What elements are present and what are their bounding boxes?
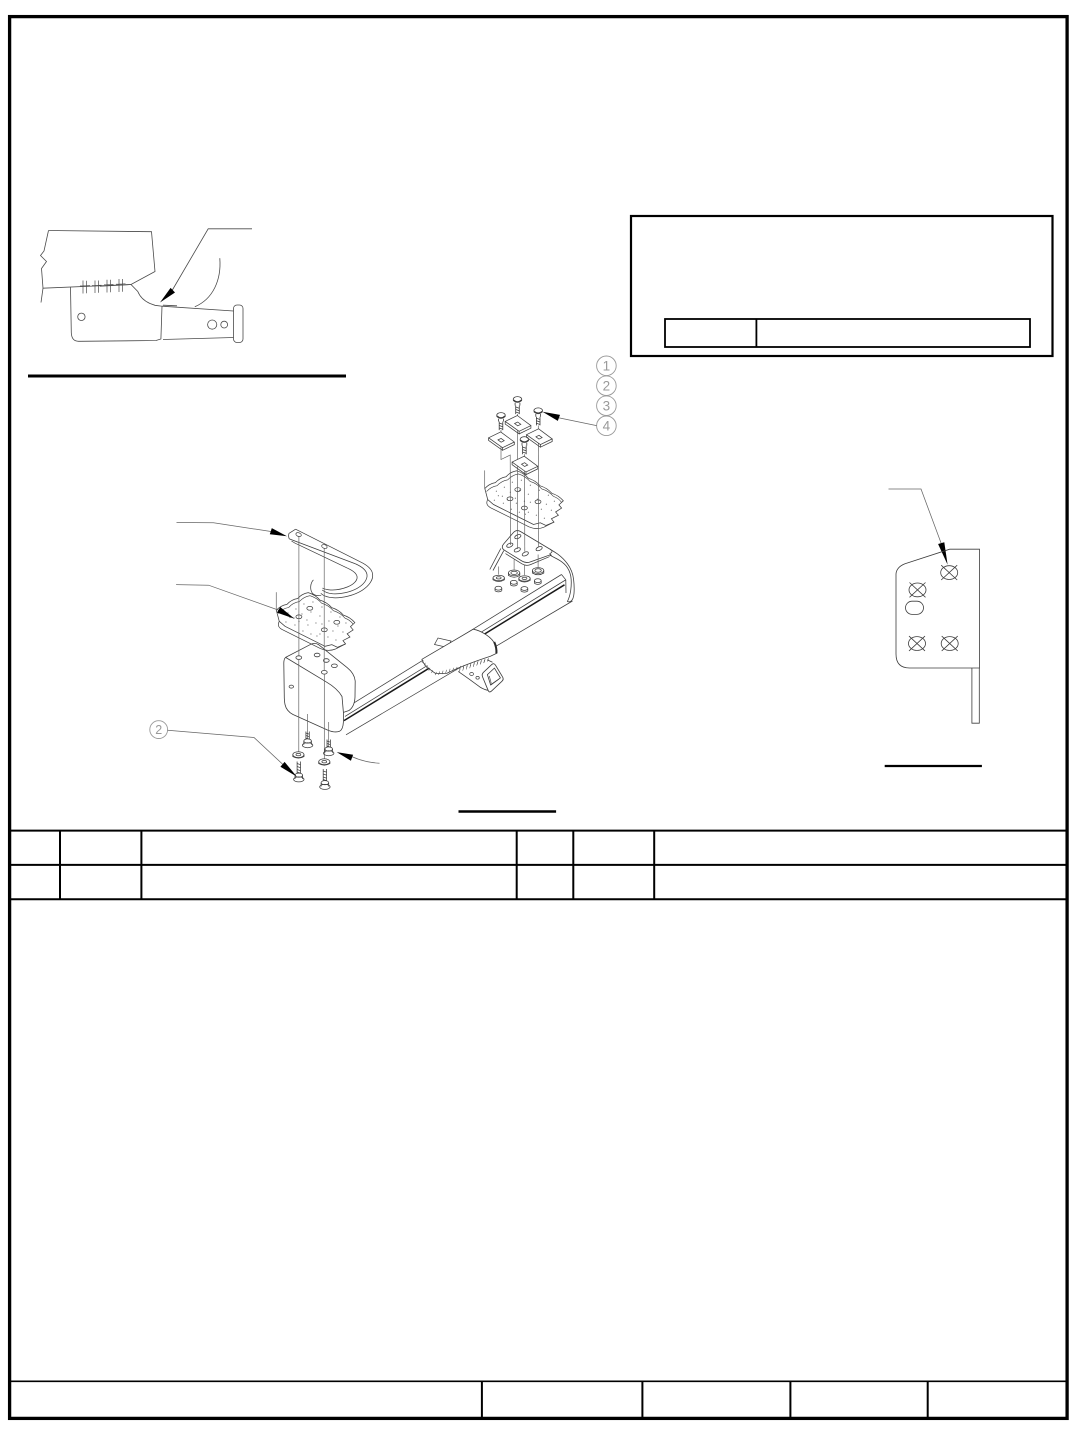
- svg-text:2: 2: [603, 379, 611, 394]
- svg-text:3: 3: [603, 399, 611, 414]
- svg-text:2: 2: [155, 723, 162, 737]
- svg-text:4: 4: [603, 419, 611, 434]
- svg-text:1: 1: [603, 359, 611, 374]
